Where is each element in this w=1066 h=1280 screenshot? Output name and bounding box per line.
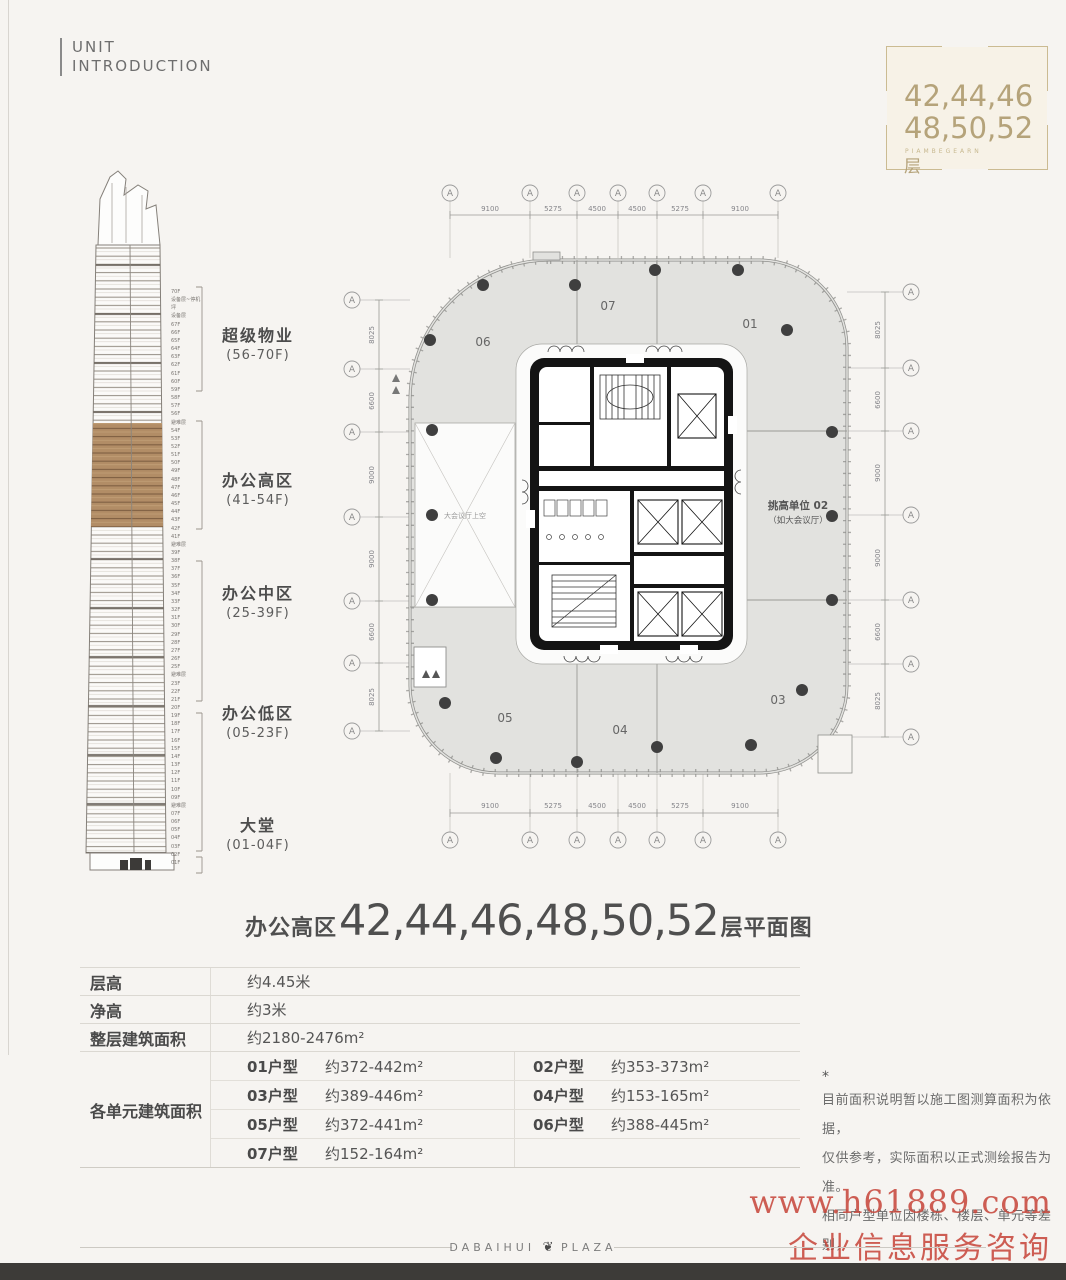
svg-text:A: A: [908, 660, 915, 670]
brochure-page: UNIT INTRODUCTION 42,44,46 48,50,52层 PIA…: [0, 0, 1066, 1280]
footer-brand: DABAIHUI ❦ PLAZA: [0, 1240, 1066, 1255]
unit-type: 07户型: [247, 1143, 325, 1164]
parapet-notch: [533, 252, 560, 260]
svg-text:6600: 6600: [368, 392, 376, 410]
svg-text:A: A: [574, 836, 581, 846]
tower-podium: [90, 853, 174, 870]
floor-badge: 42,44,46 48,50,52层 PIAMBEGEARN: [886, 46, 1048, 170]
badge-floors-line2: 48,50,52层: [904, 111, 1047, 179]
disclaimer-line: 目前面积说明暂以施工图测算面积为依据，: [822, 1086, 1052, 1144]
table-row: 05户型约372-441m² 06户型约388-445m²: [211, 1109, 800, 1138]
svg-text:5275: 5275: [544, 205, 562, 213]
service-core: [522, 346, 741, 662]
table-row: 01户型约372-442m² 02户型约353-373m²: [211, 1052, 800, 1080]
svg-text:A: A: [349, 513, 356, 523]
unit-07-label: 07: [600, 299, 615, 313]
svg-text:A: A: [775, 189, 782, 199]
spec-table: 层高 约4.45米 净高 约3米 整层建筑面积 约2180-2476m² 各单元…: [80, 967, 800, 1168]
service-lift: [678, 394, 716, 438]
unit-type: 05户型: [247, 1114, 325, 1135]
table-row: 层高 约4.45米: [80, 967, 800, 995]
unit-area: 约153-165m²: [611, 1085, 709, 1106]
svg-text:9000: 9000: [874, 549, 882, 567]
badge-floors-line1: 42,44,46: [904, 79, 1033, 113]
unit-area: 约152-164m²: [325, 1143, 423, 1164]
unit-type: 06户型: [533, 1114, 611, 1135]
svg-text:A: A: [615, 189, 622, 199]
svg-text:6600: 6600: [874, 391, 882, 409]
badge-caption: PIAMBEGEARN: [905, 148, 982, 155]
unit-areas-label: 各单元建筑面积: [80, 1052, 210, 1167]
svg-text:A: A: [349, 659, 356, 669]
unit-05-label: 05: [497, 711, 512, 725]
svg-text:（如大会议厅）: （如大会议厅）: [768, 515, 828, 526]
svg-text:A: A: [574, 189, 581, 199]
brand-left: DABAIHUI: [449, 1241, 535, 1254]
svg-text:4500: 4500: [588, 802, 606, 810]
svg-text:A: A: [775, 836, 782, 846]
row-value: 约4.45米: [210, 968, 800, 995]
high-zone-highlight-band: [91, 423, 163, 527]
unit-type: 01户型: [247, 1056, 325, 1077]
unit-type: 02户型: [533, 1056, 611, 1077]
plan-title: 办公高区 42,44,46,48,50,52 层平面图: [245, 896, 813, 946]
svg-text:5275: 5275: [671, 802, 689, 810]
unit-01-label: 01: [742, 317, 757, 331]
bottom-dark-bar: [0, 1263, 1066, 1280]
svg-text:A: A: [908, 288, 915, 298]
header-line2: INTRODUCTION: [72, 57, 213, 76]
row-label: 整层建筑面积: [80, 1026, 210, 1050]
table-row: 整层建筑面积 约2180-2476m²: [80, 1023, 800, 1051]
svg-text:9000: 9000: [368, 550, 376, 568]
svg-text:4500: 4500: [628, 205, 646, 213]
svg-text:A: A: [908, 596, 915, 606]
svg-text:A: A: [654, 836, 661, 846]
row-label: 净高: [80, 998, 210, 1022]
svg-text:6600: 6600: [874, 623, 882, 641]
void-label: 大会议厅上空: [444, 511, 486, 520]
row-value: 约2180-2476m²: [210, 1024, 800, 1051]
svg-text:9100: 9100: [481, 205, 499, 213]
leaf-icon: ❦: [543, 1240, 554, 1255]
zone-label-office-high: 办公高区 (41-54F): [200, 467, 316, 508]
svg-text:8025: 8025: [368, 688, 376, 706]
svg-text:A: A: [447, 189, 454, 199]
svg-text:A: A: [349, 365, 356, 375]
floor-number-column: 70F 设备层~停机坪 设备层 67F 66F 65F 64F 63F 62F …: [171, 288, 201, 867]
svg-text:8025: 8025: [368, 326, 376, 344]
table-row: 净高 约3米: [80, 995, 800, 1023]
svg-text:6600: 6600: [368, 623, 376, 641]
svg-text:A: A: [908, 733, 915, 743]
svg-text:8025: 8025: [874, 321, 882, 339]
bottom-entrance-notch: [818, 735, 852, 773]
svg-text:9100: 9100: [731, 205, 749, 213]
zone-label-super: 超级物业 (56-70F): [200, 322, 316, 363]
unit-area: 约388-445m²: [611, 1114, 709, 1135]
svg-text:A: A: [654, 189, 661, 199]
unit-type: 03户型: [247, 1085, 325, 1106]
svg-text:A: A: [349, 428, 356, 438]
svg-text:A: A: [700, 189, 707, 199]
zone-label-office-low: 办公低区 (05-23F): [200, 700, 316, 741]
svg-text:A: A: [908, 511, 915, 521]
header-line1: UNIT: [72, 38, 213, 57]
svg-text:9100: 9100: [481, 802, 499, 810]
svg-text:8025: 8025: [874, 692, 882, 710]
unit-area: 约372-442m²: [325, 1056, 423, 1077]
plan-title-floors: 42,44,46,48,50,52: [339, 896, 719, 946]
svg-text:A: A: [527, 836, 534, 846]
table-row: 03户型约389-446m² 04户型约153-165m²: [211, 1080, 800, 1109]
svg-text:9000: 9000: [874, 464, 882, 482]
page-header: UNIT INTRODUCTION: [60, 38, 213, 76]
tower-body: [86, 245, 166, 853]
unit-04-label: 04: [612, 723, 627, 737]
svg-text:4500: 4500: [588, 205, 606, 213]
svg-text:A: A: [527, 189, 534, 199]
row-label: 层高: [80, 970, 210, 994]
plan-title-prefix: 办公高区: [245, 910, 337, 942]
watermark-url: www.h61889.com: [749, 1183, 1052, 1221]
svg-text:A: A: [349, 727, 356, 737]
asterisk-mark: *: [822, 1068, 1052, 1086]
unit-area: 约389-446m²: [325, 1085, 423, 1106]
svg-text:9100: 9100: [731, 802, 749, 810]
svg-text:4500: 4500: [628, 802, 646, 810]
unit-areas-block: 各单元建筑面积 01户型约372-442m² 02户型约353-373m² 03…: [80, 1051, 800, 1168]
svg-text:A: A: [700, 836, 707, 846]
unit-type: 04户型: [533, 1085, 611, 1106]
svg-text:A: A: [349, 597, 356, 607]
scan-edge-line: [8, 0, 9, 1055]
unit-area: 约353-373m²: [611, 1056, 709, 1077]
svg-text:A: A: [447, 836, 454, 846]
zone-label-lobby: 大堂 (01-04F): [200, 812, 316, 853]
svg-text:5275: 5275: [671, 205, 689, 213]
unit-area: 约372-441m²: [325, 1114, 423, 1135]
svg-text:挑高单位 02: 挑高单位 02: [768, 499, 828, 512]
tower-crown: [98, 171, 160, 245]
brand-right: PLAZA: [561, 1241, 617, 1254]
svg-text:A: A: [349, 296, 356, 306]
floor-plan-drawing: 大会议厅上空: [330, 170, 950, 870]
plan-title-suffix: 层平面图: [721, 910, 813, 942]
svg-text:9000: 9000: [368, 466, 376, 484]
row-value: 约3米: [210, 996, 800, 1023]
table-row: 07户型约152-164m²: [211, 1138, 800, 1167]
svg-text:5275: 5275: [544, 802, 562, 810]
zone-label-office-mid: 办公中区 (25-39F): [200, 580, 316, 621]
unit-06-label: 06: [475, 335, 490, 349]
svg-text:A: A: [615, 836, 622, 846]
unit-03-label: 03: [770, 693, 785, 707]
svg-text:A: A: [908, 364, 915, 374]
svg-text:A: A: [908, 427, 915, 437]
